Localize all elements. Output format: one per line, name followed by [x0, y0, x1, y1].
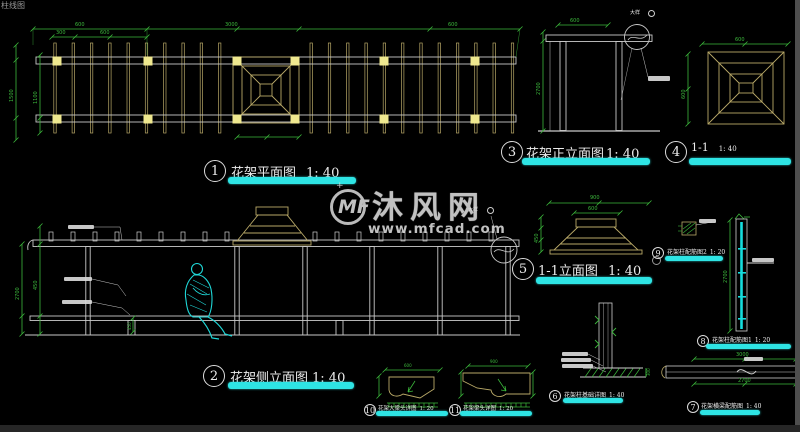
- detail-ref-note: 大样: [630, 11, 640, 16]
- bottom-edge-strip: [0, 425, 800, 432]
- title-underline-bar: [376, 411, 448, 416]
- right-edge-strip: [795, 0, 800, 432]
- watermark-url: www.mfcad.com: [368, 221, 506, 237]
- annotation-text-bar: [752, 258, 774, 262]
- title-underline-bar: [536, 277, 652, 284]
- title-underline-bar: [665, 256, 723, 261]
- plan-beams: [36, 57, 516, 122]
- label-number-7: 7: [687, 401, 699, 413]
- dim-text: 600: [570, 19, 580, 24]
- cad-viewer-canvas: 大样 大样 600 3000 600 300 600 1500 1100 600…: [0, 0, 800, 432]
- cap-plan-detail: [686, 42, 791, 127]
- title-underline-bar: [706, 344, 791, 349]
- dim-text: 450: [34, 280, 39, 290]
- dim-text: 2700: [16, 287, 21, 300]
- dim-text: 2700: [537, 82, 542, 95]
- dim-text: 3000: [736, 353, 749, 358]
- drawing-title-7: 花架横梁配筋图1: 40: [701, 401, 761, 410]
- annotation-text-bar: [64, 277, 92, 281]
- label-number-2: 2: [203, 365, 225, 387]
- label-number-5: 5: [512, 258, 534, 280]
- dim-text: 450: [128, 322, 132, 330]
- front-elevation: [538, 23, 660, 134]
- annotation-text-bar: [562, 352, 588, 356]
- annotation-text-bar: [68, 225, 94, 229]
- label-number-10: 10: [364, 404, 376, 416]
- seated-person-figure: [185, 264, 232, 340]
- dim-text: 300: [647, 368, 651, 376]
- label-number-3: 3: [501, 141, 523, 163]
- dim-text: 2700: [738, 379, 751, 384]
- dim-text: 600: [100, 31, 110, 36]
- drawing-title-9: 花架柱配筋图21: 20: [667, 247, 725, 256]
- plan-columns: [53, 57, 480, 124]
- dim-text: 600: [735, 38, 745, 43]
- column-rebar-detail-2: [678, 222, 712, 235]
- dim-text: 600: [404, 364, 412, 368]
- plan-view: [14, 27, 523, 143]
- dim-text: 3000: [225, 23, 238, 28]
- watermark: MF + 沐风网 www.mfcad.com: [328, 180, 498, 242]
- annotation-text-bar: [699, 219, 716, 223]
- dim-text: 1100: [34, 91, 39, 104]
- label-number-6: 6: [549, 390, 561, 402]
- dim-text: 900: [590, 196, 600, 201]
- column-rebar-detail-1: [728, 214, 775, 334]
- side-pavilion-cap: [233, 207, 311, 245]
- title-underline-bar: [563, 398, 623, 403]
- dim-text: 300: [56, 31, 66, 36]
- detail-ref-bubble-icon: [648, 10, 655, 17]
- label-number-1: 1: [204, 160, 226, 182]
- dim-text: 900: [490, 360, 498, 364]
- rebar-line: [738, 222, 746, 329]
- dim-text: 450: [535, 233, 540, 243]
- annotation-text-bar: [648, 76, 670, 81]
- main-beam-head-detail: [377, 368, 443, 408]
- label-number-9: 9: [652, 247, 664, 259]
- logo-star-icon: +: [336, 181, 344, 191]
- drawing-title-8: 花架柱配筋图11: 20: [712, 335, 770, 344]
- title-underline-bar: [460, 411, 532, 416]
- annotation-text-bar: [562, 364, 593, 368]
- label-number-4: 4: [665, 141, 687, 163]
- title-underline-bar: [228, 382, 354, 389]
- title-underline-bar: [700, 410, 760, 415]
- dim-text: 2700: [724, 270, 729, 283]
- beam-head-detail: [459, 364, 536, 408]
- dim-text: 1500: [10, 89, 15, 102]
- mf-logo-icon: MF: [330, 189, 366, 225]
- drawing-title-4: 1-11: 40: [691, 141, 737, 154]
- window-corner-text: 柱线图: [1, 0, 25, 11]
- annotation-text-bar: [561, 358, 591, 362]
- dim-text: 600: [448, 23, 458, 28]
- title-underline-bar: [522, 158, 650, 165]
- beam-rebar-detail: [662, 357, 799, 387]
- title-underline-bar: [689, 158, 791, 165]
- plan-dimensions: [14, 27, 523, 143]
- dim-text: 600: [75, 23, 85, 28]
- dim-text: 600: [682, 89, 687, 99]
- annotation-text-bar: [62, 300, 92, 304]
- dim-text: 600: [588, 207, 598, 212]
- plan-pavilion: [233, 57, 299, 123]
